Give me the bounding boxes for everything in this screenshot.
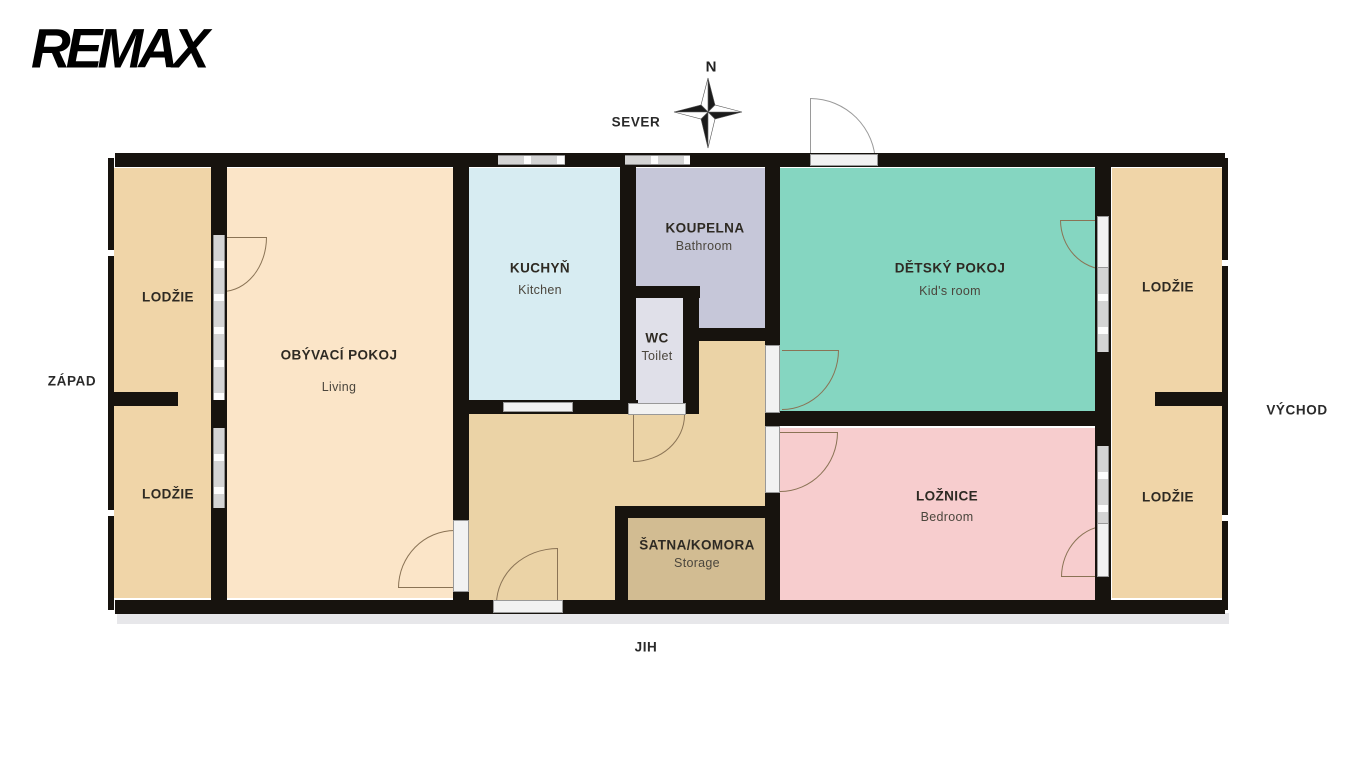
- loggia-railing-east: [1222, 158, 1228, 610]
- room-label-living: OBÝVACÍ POKOJ: [281, 348, 398, 363]
- room-label-loggia-ne: LODŽIE: [1142, 280, 1194, 295]
- hallway-upper: [690, 328, 770, 418]
- room-label-wc: WC: [645, 331, 668, 346]
- plan-shadow: [117, 613, 1229, 624]
- window-kitchen-north: [498, 155, 565, 165]
- door-living: [453, 520, 469, 592]
- compass-rose-icon: [670, 74, 746, 152]
- window-living-west-upper: [213, 235, 225, 400]
- loggia-divider-west: [114, 392, 178, 406]
- room-label-living-en: Living: [322, 380, 356, 394]
- door-entrance-south: [493, 600, 563, 613]
- room-label-bedroom-en: Bedroom: [921, 510, 974, 524]
- direction-label-north: SEVER: [612, 115, 661, 130]
- room-label-wc-en: Toilet: [642, 349, 673, 363]
- door-wc: [628, 403, 686, 415]
- floorplan: LODŽIE LODŽIE LODŽIE LODŽIE OBÝVACÍ POKO…: [105, 150, 1240, 620]
- wall: [615, 506, 773, 518]
- room-label-loggia-sw: LODŽIE: [142, 487, 194, 502]
- room-label-kids: DĚTSKÝ POKOJ: [895, 261, 1006, 276]
- room-loggia-east: [1112, 168, 1222, 598]
- wall: [768, 411, 1108, 426]
- room-label-kitchen: KUCHYŇ: [510, 261, 570, 276]
- room-label-bedroom: LOŽNICE: [916, 489, 978, 504]
- railing-gap: [1222, 260, 1228, 266]
- door-kids-balcony: [1097, 216, 1109, 268]
- wall: [683, 286, 699, 414]
- room-label-bathroom-en: Bathroom: [676, 239, 733, 253]
- door-bedroom: [765, 426, 780, 493]
- direction-label-east: VÝCHOD: [1266, 403, 1327, 418]
- window-living-west-lower: [213, 428, 225, 508]
- room-label-kitchen-en: Kitchen: [518, 283, 562, 297]
- hatch-kitchen: [503, 402, 573, 412]
- door-kids: [765, 345, 780, 413]
- room-label-loggia-nw: LODŽIE: [142, 290, 194, 305]
- wall: [115, 600, 1225, 614]
- window-bathroom-north: [625, 155, 690, 165]
- wall: [692, 328, 772, 341]
- remax-logo: REMAX: [31, 15, 205, 80]
- loggia-divider-east: [1155, 392, 1222, 406]
- room-label-bathroom: KOUPELNA: [666, 221, 745, 236]
- wall: [615, 506, 628, 614]
- door-entrance-north: [810, 154, 878, 166]
- railing-gap: [1222, 515, 1228, 521]
- wall: [620, 153, 636, 414]
- floorplan-page: REMAX N SEVER JIH ZÁPAD VÝCHOD: [0, 0, 1365, 768]
- door-bedroom-balcony: [1097, 523, 1109, 577]
- direction-label-south: JIH: [635, 640, 658, 655]
- window-bedroom-east: [1097, 446, 1109, 523]
- room-label-loggia-se: LODŽIE: [1142, 490, 1194, 505]
- room-label-kids-en: Kid's room: [919, 284, 981, 298]
- window-kids-east: [1097, 268, 1109, 352]
- direction-label-west: ZÁPAD: [48, 374, 97, 389]
- room-loggia-west: [114, 168, 214, 598]
- room-label-storage-en: Storage: [674, 556, 720, 570]
- room-label-storage: ŠATNA/KOMORA: [639, 538, 755, 553]
- compass-north-letter: N: [706, 59, 717, 76]
